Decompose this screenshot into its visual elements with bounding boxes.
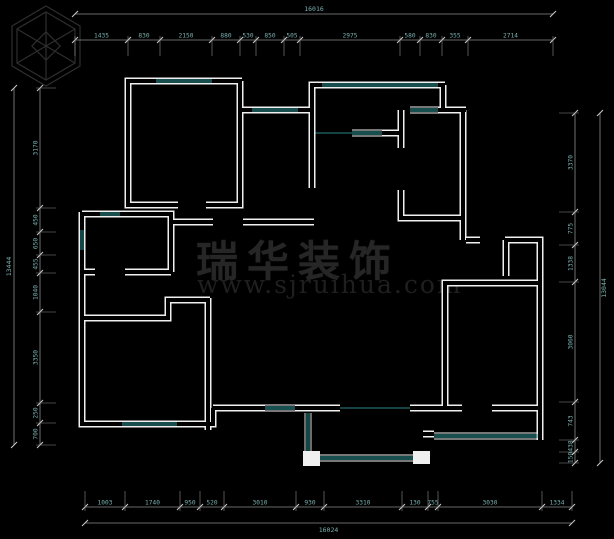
svg-text:1338: 1338 [568, 256, 575, 271]
svg-text:830: 830 [138, 33, 149, 40]
svg-text:2714: 2714 [503, 33, 518, 40]
svg-text:13444: 13444 [5, 257, 13, 277]
svg-text:1040: 1040 [33, 285, 40, 300]
svg-text:3170: 3170 [33, 140, 40, 155]
svg-text:830: 830 [425, 33, 436, 40]
svg-text:450: 450 [33, 214, 40, 225]
svg-text:755: 755 [427, 500, 438, 507]
floorplan-svg: 1435830215088053085050529755808303552714… [0, 0, 614, 539]
svg-text:850: 850 [264, 33, 275, 40]
wallb-layer [82, 81, 540, 440]
svg-text:930: 930 [304, 500, 315, 507]
svg-text:3030: 3030 [483, 500, 498, 507]
cad-viewport: 瑞华装饰 www.sjruihua.com 143583021508805308… [0, 0, 614, 539]
col-layer [303, 451, 430, 466]
svg-text:16016: 16016 [304, 5, 324, 13]
svg-text:13044: 13044 [600, 278, 608, 298]
svg-text:880: 880 [220, 33, 231, 40]
svg-text:505: 505 [286, 33, 297, 40]
svg-text:130: 130 [409, 500, 420, 507]
svg-text:1003: 1003 [98, 500, 113, 507]
svg-text:3310: 3310 [356, 500, 371, 507]
svg-text:438: 438 [568, 440, 575, 451]
svg-text:1334: 1334 [550, 500, 565, 507]
svg-text:2975: 2975 [343, 33, 358, 40]
thin-layer [312, 133, 410, 408]
svg-text:2150: 2150 [179, 33, 194, 40]
svg-text:16024: 16024 [319, 526, 339, 534]
svg-text:150: 150 [568, 452, 575, 463]
svg-text:520: 520 [206, 500, 217, 507]
svg-text:775: 775 [568, 223, 575, 234]
svg-text:1435: 1435 [94, 33, 109, 40]
svg-text:355: 355 [449, 33, 460, 40]
svg-text:3370: 3370 [568, 155, 575, 170]
svg-text:250: 250 [33, 407, 40, 418]
svg-text:650: 650 [33, 238, 40, 249]
svg-text:3060: 3060 [568, 334, 575, 349]
svg-text:455: 455 [33, 258, 40, 269]
svg-text:1740: 1740 [145, 500, 160, 507]
svg-text:743: 743 [568, 415, 575, 426]
svg-text:3010: 3010 [253, 500, 268, 507]
svg-text:3350: 3350 [33, 350, 40, 365]
svg-text:530: 530 [242, 33, 253, 40]
svg-text:700: 700 [33, 428, 40, 439]
svg-text:580: 580 [404, 33, 415, 40]
svg-text:950: 950 [184, 500, 195, 507]
